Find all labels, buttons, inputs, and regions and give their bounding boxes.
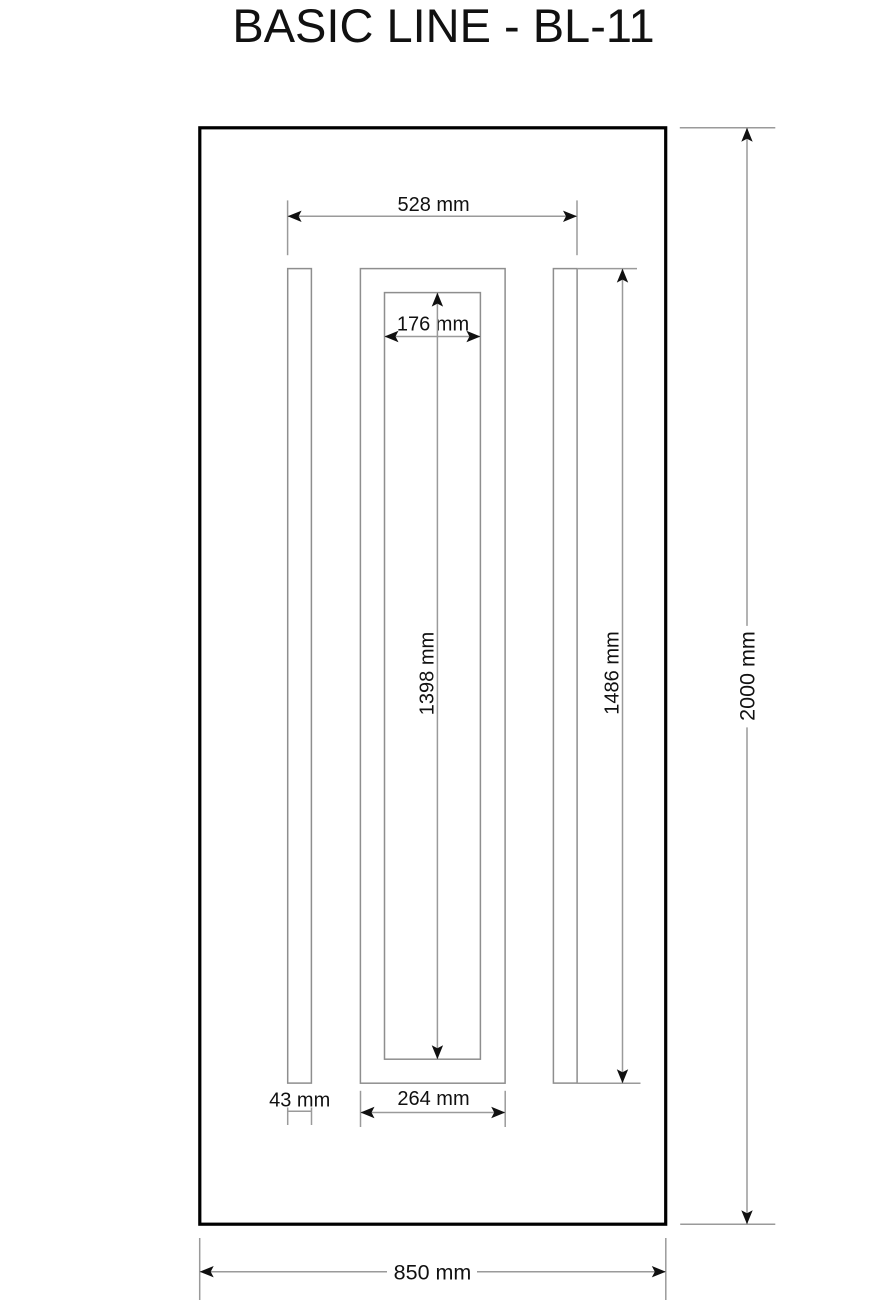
svg-text:1398 mm: 1398 mm [417, 632, 439, 715]
svg-text:1486 mm: 1486 mm [601, 631, 623, 714]
svg-text:850 mm: 850 mm [394, 1261, 472, 1285]
svg-text:528 mm: 528 mm [397, 194, 469, 216]
svg-text:176 mm: 176 mm [397, 314, 469, 336]
svg-text:BASIC LINE - BL-11: BASIC LINE - BL-11 [232, 0, 654, 52]
svg-text:43 mm: 43 mm [269, 1090, 330, 1112]
svg-text:264 mm: 264 mm [397, 1088, 469, 1110]
svg-text:2000 mm: 2000 mm [736, 631, 760, 721]
